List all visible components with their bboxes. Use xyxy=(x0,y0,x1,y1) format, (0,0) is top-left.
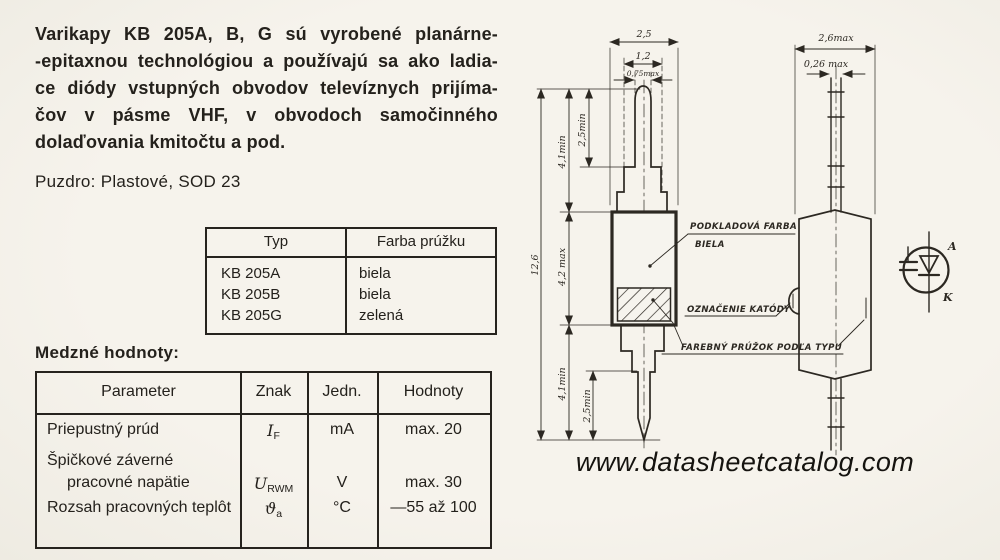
dim-lead-thickness: 0,26 max xyxy=(804,59,849,70)
dim-step-width: 1,2 xyxy=(635,51,650,62)
intro-line: Varikapy KB 205A, B, G sú vyrobené planá… xyxy=(35,21,498,48)
cell-typ: KB 205B xyxy=(221,286,280,303)
dim-lead-bottom: 4,1min xyxy=(557,367,568,401)
limits-table: Parameter Znak Jedn. Hodnoty Priepustný … xyxy=(35,371,492,549)
column-header-hodnoty: Hodnoty xyxy=(377,383,490,401)
type-color-table: Typ Farba prúžku KB 205A biela KB 205B b… xyxy=(205,227,497,335)
dim-body-width: 2,5 xyxy=(635,29,651,40)
anode-label: A xyxy=(947,240,957,253)
table-row: KB 205B biela xyxy=(207,286,495,306)
top-lead-outline xyxy=(617,86,667,212)
cell-unit: V xyxy=(307,474,377,492)
symbol-subscript: RWM xyxy=(267,483,293,495)
cell-farba: zelená xyxy=(359,307,403,324)
table-row: KB 205G zelená xyxy=(207,307,495,327)
package-line: Puzdro: Plastové, SOD 23 xyxy=(35,172,241,192)
dim-blade-bottom: 2,5min xyxy=(582,389,593,423)
intro-line: -epitaxnou technológiou a používajú sa a… xyxy=(35,48,498,75)
table-header-row: Parameter Znak Jedn. Hodnoty xyxy=(37,373,490,415)
cell-typ: KB 205G xyxy=(221,307,282,324)
bottom-lead-outline xyxy=(621,325,664,440)
symbol-base: U xyxy=(254,474,267,493)
cell-farba: biela xyxy=(359,286,391,303)
cell-symbol: URWM xyxy=(240,474,307,495)
leader-dot xyxy=(648,264,651,267)
extension-lines xyxy=(795,45,875,214)
column-header-typ: Typ xyxy=(207,233,345,250)
side-view: 2,6max 0,26 max xyxy=(789,33,875,455)
column-header-parameter: Parameter xyxy=(37,383,240,401)
cell-unit: mA xyxy=(307,421,377,439)
scanned-datasheet-page: Varikapy KB 205A, B, G sú vyrobené planá… xyxy=(0,0,1000,560)
dim-total-height: 12,6 xyxy=(530,254,541,275)
intro-line: dolaďovania kmitočtu a pod. xyxy=(35,129,498,156)
label-base-color-line2: BIELA xyxy=(695,240,725,250)
leader-dot xyxy=(651,298,654,301)
label-cathode-mark: OZNAČENIE KATÓDY xyxy=(687,303,791,315)
leader-line xyxy=(838,320,864,346)
intro-paragraph: Varikapy KB 205A, B, G sú vyrobené planá… xyxy=(35,21,498,156)
cell-unit: °C xyxy=(307,499,377,517)
cell-value: —55 až 100 xyxy=(377,499,490,517)
watermark-url: www.datasheetcatalog.com xyxy=(565,447,925,478)
table-row: pracovné napätie URWM V max. 30 xyxy=(37,474,490,496)
symbol-subscript: F xyxy=(273,430,279,442)
label-color-stripe: FAREBNÝ PRÚŽOK PODĽA TYPU xyxy=(681,341,842,353)
cell-value: max. 20 xyxy=(377,421,490,439)
intro-line: čov v pásme VHF, v obvodoch samočinného xyxy=(35,102,498,129)
annotations: PODKLADOVÁ FARBA BIELA OZNAČENIE KATÓDY … xyxy=(648,220,864,354)
cell-parameter: Špičkové záverné xyxy=(47,452,173,470)
column-header-farba: Farba prúžku xyxy=(347,233,495,250)
varicap-symbol: A K xyxy=(900,232,957,312)
cathode-label: K xyxy=(942,291,953,304)
cell-typ: KB 205A xyxy=(221,265,280,282)
cell-parameter: Rozsah pracovných teplôt xyxy=(47,499,231,517)
cell-symbol: ϑa xyxy=(240,499,307,520)
dim-body-height: 4,2 max xyxy=(557,247,568,287)
limits-heading: Medzné hodnoty: xyxy=(35,343,179,363)
cell-value: max. 30 xyxy=(377,474,490,492)
cell-parameter: Priepustný prúd xyxy=(47,421,159,439)
intro-line: ce diódy vstupných obvodov televíznych p… xyxy=(35,75,498,102)
cell-farba: biela xyxy=(359,265,391,282)
cell-parameter: pracovné napätie xyxy=(67,474,190,492)
label-base-color-line1: PODKLADOVÁ FARBA xyxy=(690,220,797,232)
table-row: Rozsah pracovných teplôt ϑa °C —55 až 10… xyxy=(37,499,490,521)
dim-blade-top: 2,5min xyxy=(577,113,588,147)
symbol-subscript: a xyxy=(276,508,282,520)
cathode-bump xyxy=(789,288,799,314)
table-row: KB 205A biela xyxy=(207,265,495,285)
table-row: Priepustný prúd IF mA max. 20 xyxy=(37,421,490,443)
table-row: Špičkové záverné xyxy=(37,452,490,474)
symbol-base: ϑ xyxy=(265,499,276,518)
cell-symbol: IF xyxy=(240,421,307,442)
front-view: 2,5 1,2 0,75max 12,6 4,1min 2,5min 4,2 m… xyxy=(530,29,678,448)
column-header-znak: Znak xyxy=(240,383,307,401)
dim-lead-top: 4,1min xyxy=(557,135,568,169)
table-header-row: Typ Farba prúžku xyxy=(207,229,495,258)
color-stripe-band xyxy=(618,288,671,321)
package-outline-drawing: 2,5 1,2 0,75max 12,6 4,1min 2,5min 4,2 m… xyxy=(530,0,1000,500)
dim-blade-width: 0,75max xyxy=(627,69,660,78)
dim-side-width: 2,6max xyxy=(817,33,854,44)
column-header-jedn: Jedn. xyxy=(307,383,377,401)
